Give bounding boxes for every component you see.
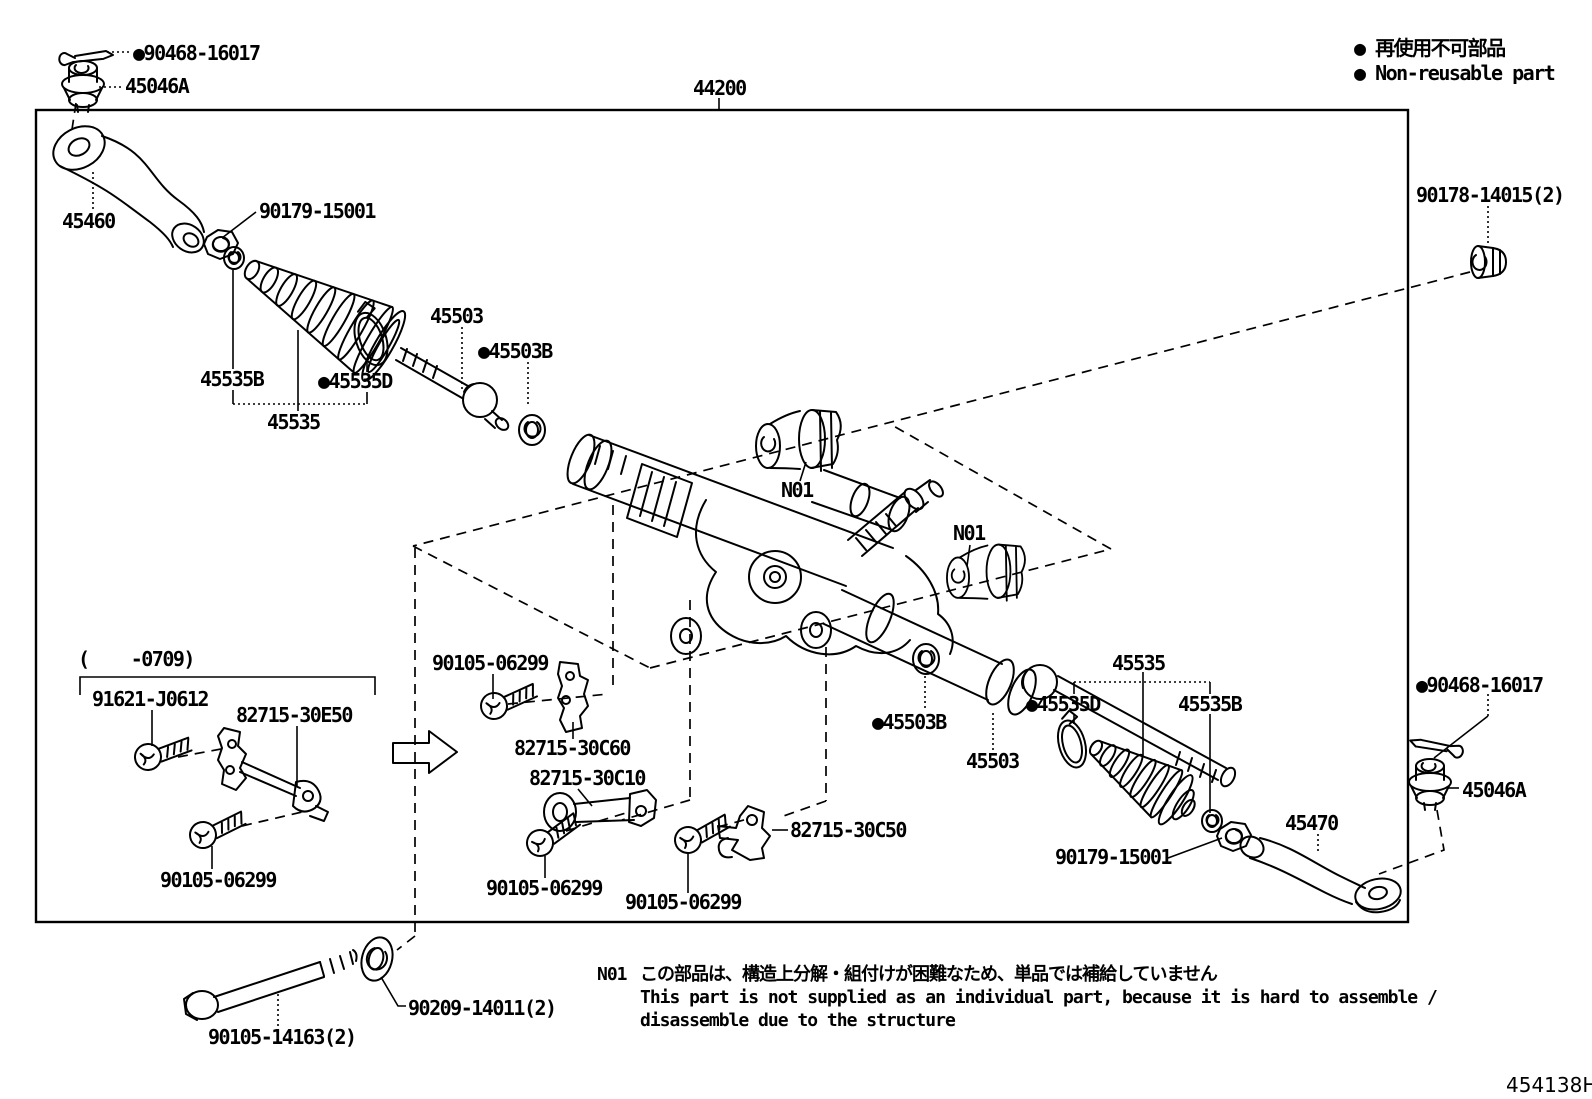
callout-n01-top: N01: [781, 478, 814, 502]
callout-90105-left: 90105-06299: [160, 868, 276, 892]
callout-82715-30c50: 82715-30C50: [790, 818, 906, 842]
callout-45535b-left: 45535B: [200, 367, 265, 391]
callout-82715-30e50: 82715-30E50: [236, 703, 352, 727]
footnote-block: N01 この部品は、構造上分解・組付けが困難なため、単品では補給していません T…: [597, 963, 1437, 1031]
callout-45503-left: 45503: [430, 304, 483, 328]
tie-rod-end-stud-right: [1409, 759, 1451, 810]
callout-45503b-right: ●45503B: [872, 710, 947, 734]
nut-90178-drawing: [1471, 246, 1506, 278]
callout-45460: 45460: [62, 209, 115, 233]
footnote-en-1: This part is not supplied as an individu…: [640, 987, 1437, 1008]
callout-44200: 44200: [693, 76, 746, 100]
bracket-82715-30c10-drawing: [544, 790, 656, 831]
rack-end-45503-right: [1022, 665, 1238, 789]
callout-45535-right: 45535: [1112, 651, 1165, 675]
callout-45470: 45470: [1285, 811, 1338, 835]
tie-rod-end-45470-drawing: [1237, 832, 1404, 913]
callout-90209-14011: 90209-14011(2): [408, 996, 556, 1020]
mount-bushing-n01-right: [947, 545, 1025, 601]
callout-labels: ●90468-16017 45046A 44200 ● 再使用不可部品 ● No…: [62, 36, 1564, 1049]
callout-90179-left: 90179-15001: [259, 199, 376, 223]
callout-45535d-left: ●45535D: [318, 369, 393, 393]
mount-bushing-n01-top: [756, 410, 841, 471]
nut-90179-left: [204, 230, 238, 259]
bolt-90105-left-drawing: [187, 811, 249, 850]
washer-90209-drawing: [357, 934, 397, 984]
parts-diagram-page: ●90468-16017 45046A 44200 ● 再使用不可部品 ● No…: [0, 0, 1592, 1099]
bracket-82715-30e50-drawing: [218, 728, 328, 821]
bracket-82715-30c50-drawing: [718, 806, 770, 860]
ring-45503b-right: [913, 644, 939, 674]
callout-45503-right: 45503: [966, 749, 1019, 773]
callout-91621: 91621-J0612: [92, 687, 208, 711]
legend-non-reusable-jp: ● 再使用不可部品: [1354, 36, 1505, 60]
bolt-91621-drawing: [134, 737, 194, 771]
callout-82715-30c10: 82715-30C10: [529, 766, 645, 790]
construction-lines: [71, 103, 1470, 950]
callout-45535-left: 45535: [267, 410, 320, 434]
diagram-code: 454138H: [1506, 1073, 1592, 1097]
direction-arrow: [393, 731, 457, 773]
callout-90468-right: ●90468-16017: [1416, 673, 1543, 697]
bolt-90105-bottom-right-drawing: [672, 814, 734, 856]
callout-45535d-right: ●45535D: [1026, 692, 1101, 716]
callout-45046a-right: 45046A: [1462, 778, 1527, 802]
callout-82715-30c60: 82715-30C60: [514, 736, 630, 760]
callout-90105-14163: 90105-14163(2): [208, 1025, 356, 1049]
callout-45046a-top: 45046A: [125, 74, 190, 98]
callout-90468-top: ●90468-16017: [133, 41, 260, 65]
clamp-ring-45535b-right: [1202, 810, 1222, 832]
ring-45503b-left: [519, 415, 545, 445]
callout-90105-bottom-right: 90105-06299: [625, 890, 741, 914]
callout-90105-mid-top: 90105-06299: [432, 651, 548, 675]
bolt-90105-mid-bottom-drawing: [522, 813, 585, 860]
callout-90179-right: 90179-15001: [1055, 845, 1172, 869]
boot-clamp-45535d-right: [1051, 709, 1091, 771]
diagram-frame: [36, 110, 1408, 922]
callout-45535b-right: 45535B: [1178, 692, 1243, 716]
tie-rod-end-stud-top-left: [62, 61, 104, 112]
callout-n01-right: N01: [953, 521, 986, 545]
legend-non-reusable-en: ● Non-reusable part: [1354, 61, 1555, 85]
callout-90105-mid-bottom: 90105-06299: [486, 876, 602, 900]
cotter-pin-top-left: [59, 51, 113, 65]
callout-0709: ( -0709): [78, 647, 194, 671]
steering-diagram-svg: ●90468-16017 45046A 44200 ● 再使用不可部品 ● No…: [0, 0, 1592, 1099]
callout-45503b-left: ●45503B: [478, 339, 553, 363]
callout-90178: 90178-14015(2): [1416, 183, 1564, 207]
long-bolt-90105-14163-drawing: [184, 950, 357, 1020]
footnote-jp: この部品は、構造上分解・組付けが困難なため、単品では補給していません: [640, 963, 1218, 985]
footnote-en-2: disassemble due to the structure: [640, 1010, 956, 1031]
relay-rod-45460-drawing: [46, 118, 210, 259]
footnote-code: N01: [597, 964, 627, 985]
